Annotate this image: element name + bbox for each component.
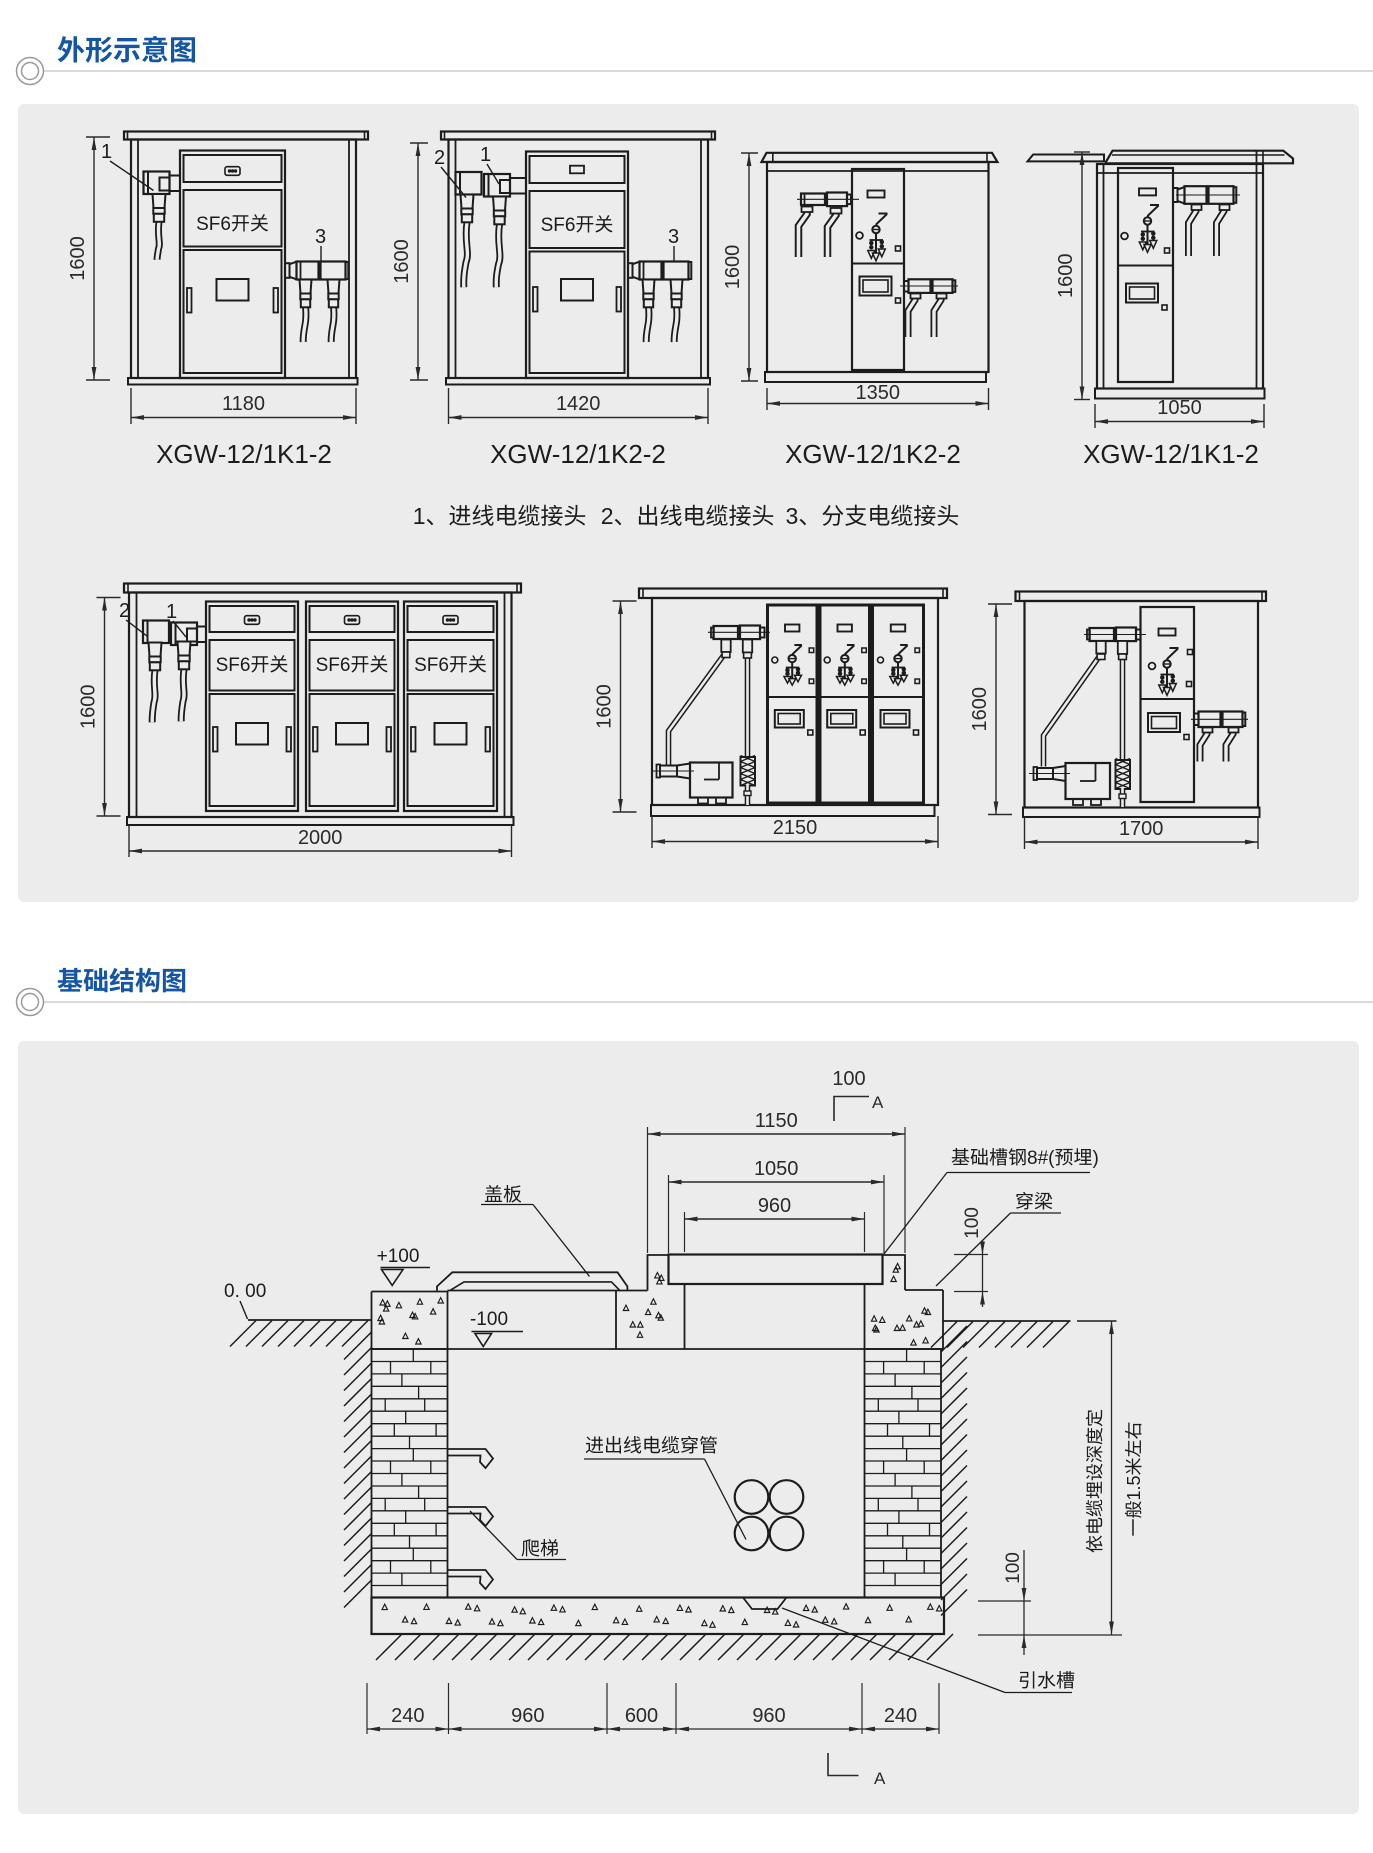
svg-text:1600: 1600 xyxy=(594,684,616,729)
svg-text:100: 100 xyxy=(962,1207,983,1239)
svg-text:SF6: SF6 xyxy=(541,215,576,236)
svg-text:A: A xyxy=(874,1769,886,1788)
svg-text:1600: 1600 xyxy=(1055,254,1077,299)
svg-text:SF6: SF6 xyxy=(196,214,231,235)
svg-text:1: 1 xyxy=(166,601,177,623)
svg-text:3: 3 xyxy=(315,226,326,248)
svg-text:XGW-12/1K1-2: XGW-12/1K1-2 xyxy=(1083,439,1259,469)
svg-text:XGW-12/1K1-2: XGW-12/1K1-2 xyxy=(156,439,332,469)
svg-text:600: 600 xyxy=(625,1705,658,1727)
svg-text:1600: 1600 xyxy=(391,239,413,284)
svg-text:1600: 1600 xyxy=(969,687,991,732)
svg-text:0. 00: 0. 00 xyxy=(224,1281,266,1302)
svg-text:1420: 1420 xyxy=(556,393,601,415)
svg-text:2: 2 xyxy=(119,600,130,622)
svg-text:240: 240 xyxy=(884,1705,917,1727)
svg-text:2000: 2000 xyxy=(298,827,343,849)
svg-text:3: 3 xyxy=(786,503,799,529)
svg-text:1: 1 xyxy=(413,503,426,529)
svg-text:1.5: 1.5 xyxy=(1124,1475,1144,1500)
svg-text:): ) xyxy=(1093,1148,1099,1169)
svg-text:100: 100 xyxy=(832,1068,865,1090)
svg-text:A: A xyxy=(872,1093,884,1112)
svg-text:1: 1 xyxy=(480,144,491,166)
svg-text:-100: -100 xyxy=(470,1309,508,1330)
svg-text:1050: 1050 xyxy=(1157,397,1202,419)
svg-text:1050: 1050 xyxy=(754,1158,799,1180)
svg-text:960: 960 xyxy=(752,1705,785,1727)
svg-text:1600: 1600 xyxy=(722,245,744,290)
svg-text:+100: +100 xyxy=(377,1246,420,1267)
svg-text:1180: 1180 xyxy=(222,393,265,415)
svg-text:2150: 2150 xyxy=(773,817,818,839)
svg-text:960: 960 xyxy=(511,1705,544,1727)
svg-text:SF6: SF6 xyxy=(316,655,351,676)
svg-text:SF6: SF6 xyxy=(414,655,449,676)
svg-text:XGW-12/1K2-2: XGW-12/1K2-2 xyxy=(785,439,961,469)
svg-text:240: 240 xyxy=(391,1705,424,1727)
svg-text:1600: 1600 xyxy=(78,685,100,730)
svg-text:1700: 1700 xyxy=(1119,818,1164,840)
svg-text:3: 3 xyxy=(668,226,679,248)
svg-text:1150: 1150 xyxy=(755,1110,798,1132)
svg-text:1600: 1600 xyxy=(67,236,89,281)
svg-text:1: 1 xyxy=(101,141,112,163)
svg-text:100: 100 xyxy=(1003,1552,1024,1584)
svg-text:1350: 1350 xyxy=(856,382,901,404)
svg-text:8#(: 8#( xyxy=(1027,1148,1055,1169)
svg-text:2: 2 xyxy=(601,503,614,529)
svg-text:960: 960 xyxy=(758,1195,791,1217)
svg-text:XGW-12/1K2-2: XGW-12/1K2-2 xyxy=(490,439,666,469)
svg-text:2: 2 xyxy=(434,147,445,169)
svg-text:SF6: SF6 xyxy=(216,655,251,676)
